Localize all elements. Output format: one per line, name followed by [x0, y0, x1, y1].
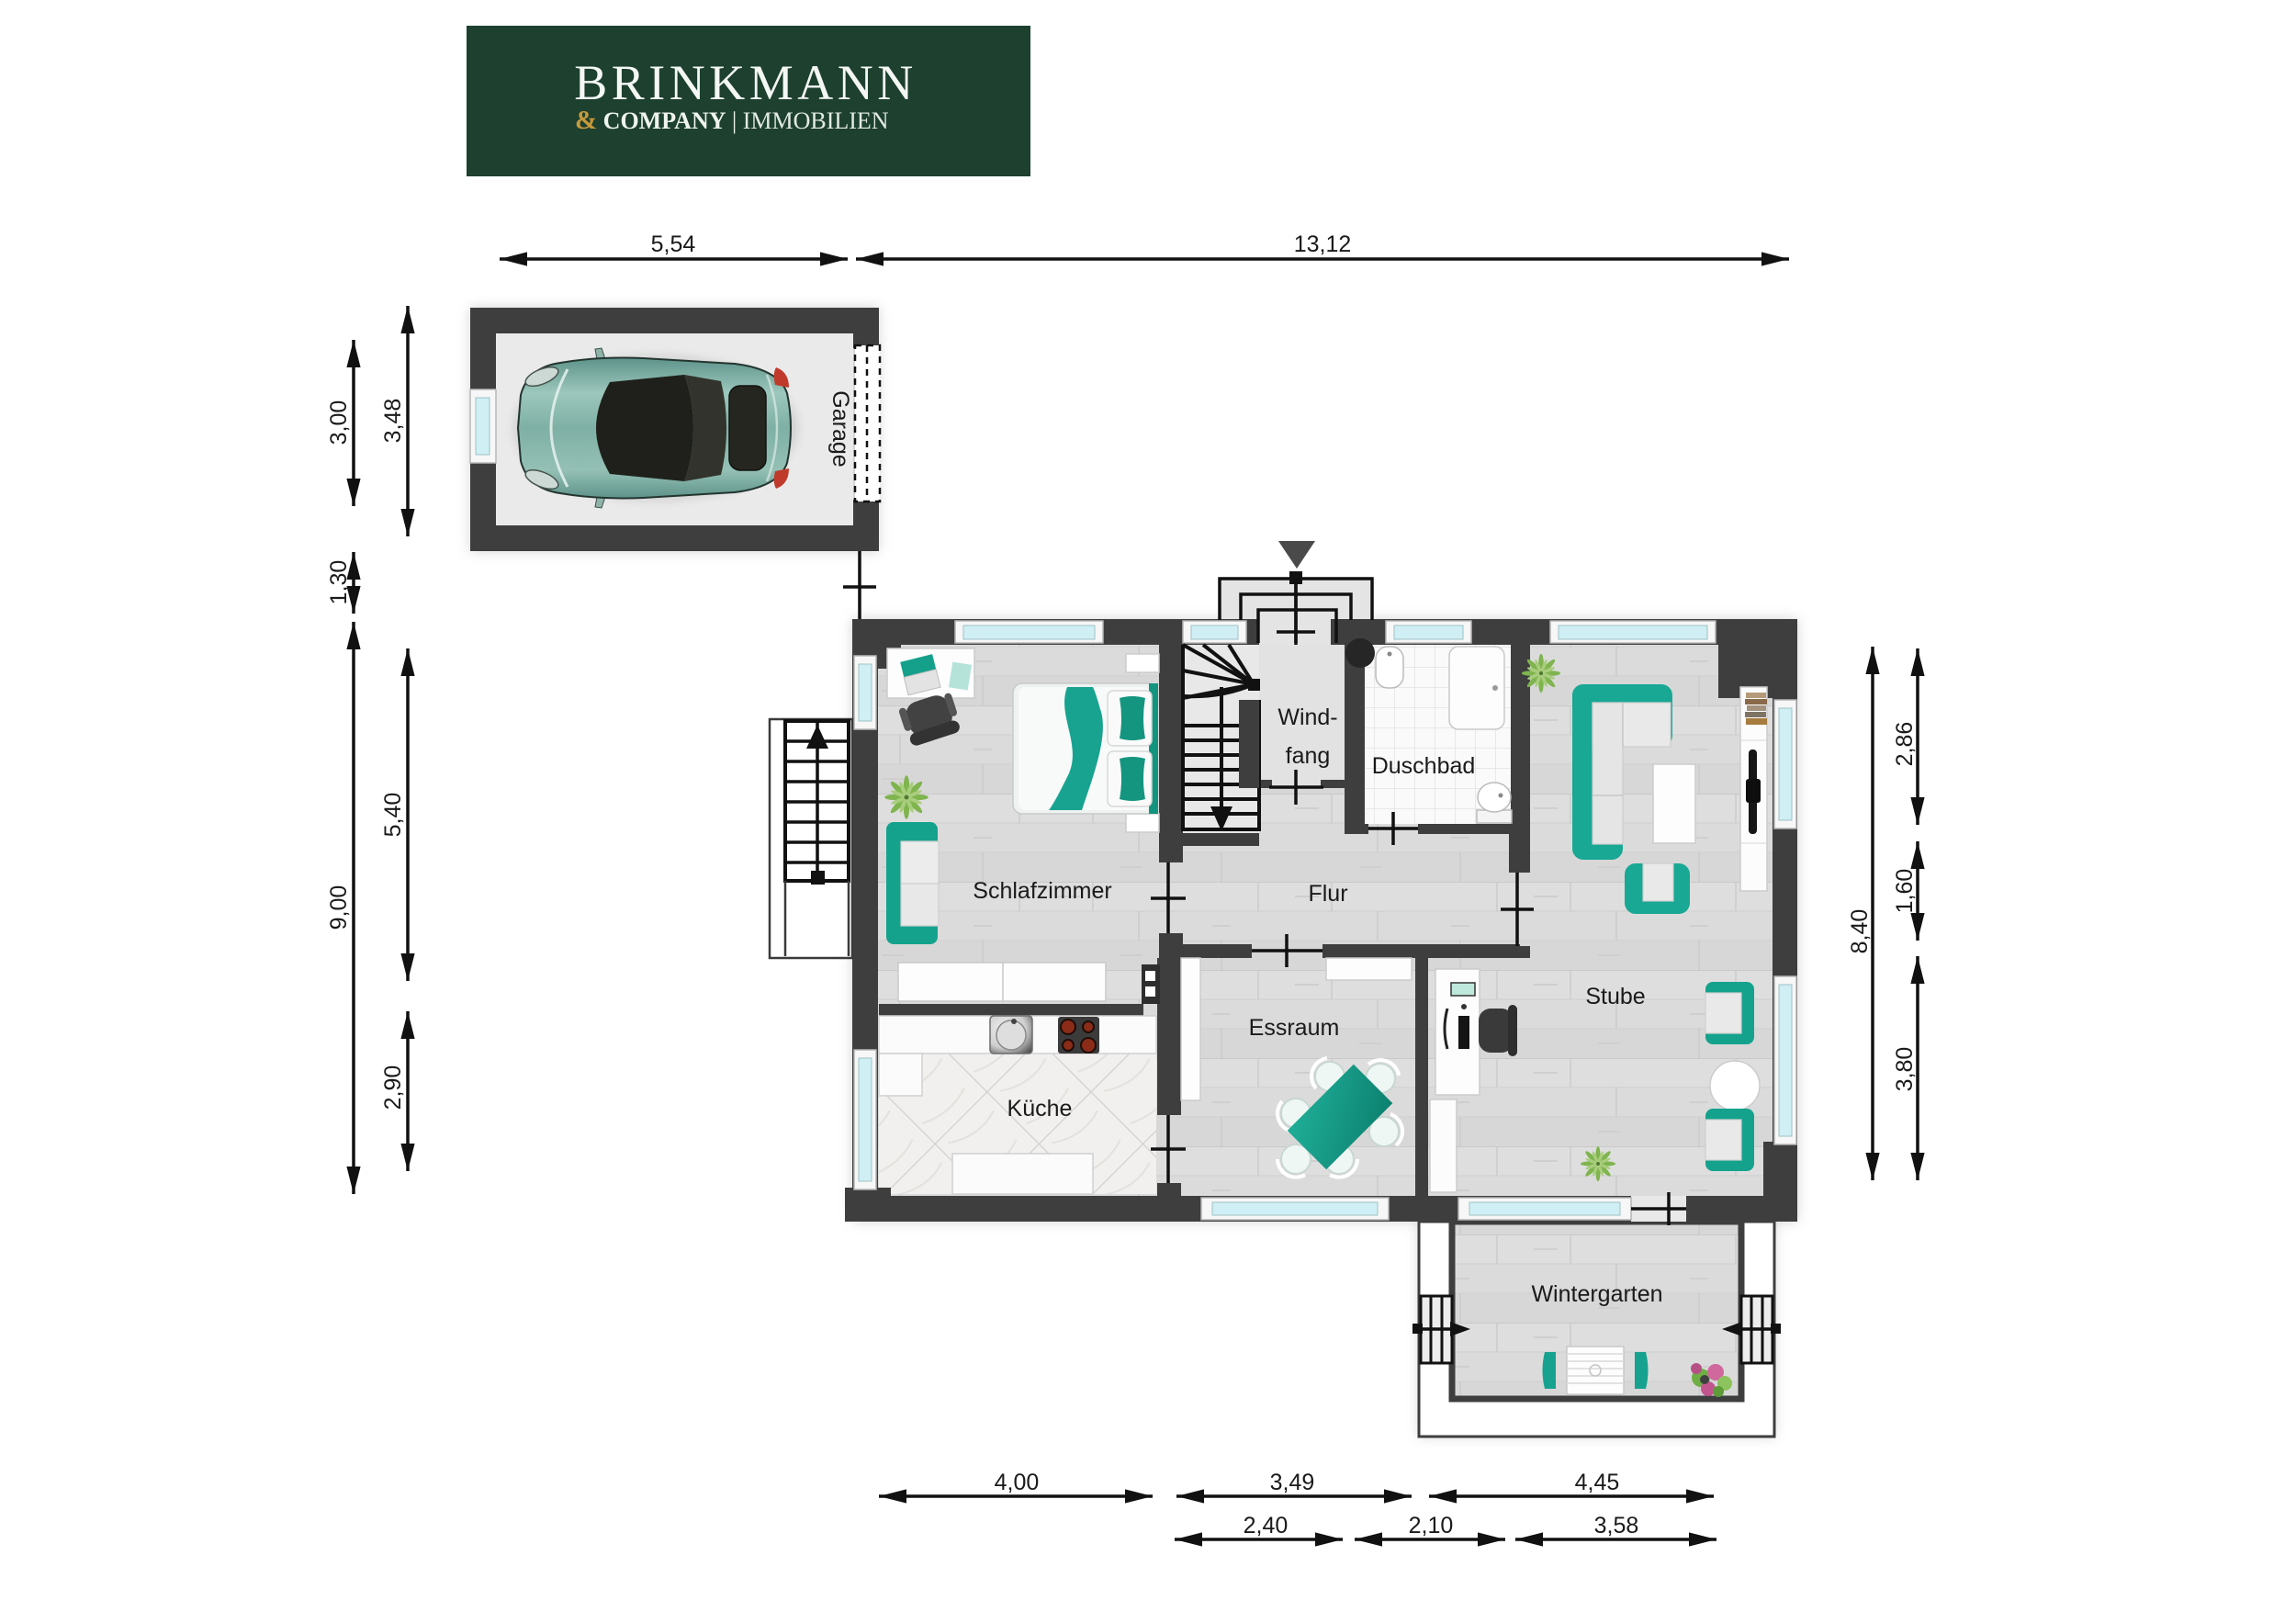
svg-text:BRINKMANN: BRINKMANN — [574, 55, 917, 110]
svg-text:fang: fang — [1286, 743, 1331, 769]
svg-text:Küche: Küche — [1007, 1096, 1073, 1121]
svg-text:Stube: Stube — [1585, 984, 1645, 1009]
svg-text:3,80: 3,80 — [1892, 1047, 1918, 1092]
svg-text:Essraum: Essraum — [1249, 1015, 1340, 1041]
svg-text:Wintergarten: Wintergarten — [1531, 1281, 1662, 1307]
svg-text:Schlafzimmer: Schlafzimmer — [973, 878, 1111, 904]
svg-text:Duschbad: Duschbad — [1372, 753, 1476, 779]
svg-text:4,45: 4,45 — [1575, 1470, 1620, 1495]
svg-text:3,00: 3,00 — [326, 400, 352, 445]
svg-text:3,48: 3,48 — [380, 399, 406, 444]
svg-text:1,30: 1,30 — [326, 560, 352, 605]
svg-text:2,10: 2,10 — [1409, 1513, 1454, 1538]
svg-text:13,12: 13,12 — [1294, 231, 1352, 257]
svg-text:3,49: 3,49 — [1270, 1470, 1315, 1495]
svg-text:8,40: 8,40 — [1847, 909, 1873, 954]
svg-text:Wind-: Wind- — [1277, 704, 1337, 730]
svg-text:5,54: 5,54 — [651, 231, 696, 257]
svg-text:9,00: 9,00 — [326, 885, 352, 930]
svg-text:5,40: 5,40 — [380, 793, 406, 838]
svg-text:3,58: 3,58 — [1594, 1513, 1639, 1538]
svg-text:2,86: 2,86 — [1892, 722, 1918, 767]
svg-text:1,60: 1,60 — [1892, 869, 1918, 914]
svg-text:2,40: 2,40 — [1244, 1513, 1289, 1538]
svg-text:2,90: 2,90 — [380, 1065, 406, 1110]
svg-text:Garage: Garage — [827, 390, 853, 467]
svg-text:& COMPANY | IMMOBILIEN: & COMPANY | IMMOBILIEN — [575, 106, 889, 135]
svg-text:4,00: 4,00 — [995, 1470, 1040, 1495]
svg-text:Flur: Flur — [1308, 881, 1347, 907]
